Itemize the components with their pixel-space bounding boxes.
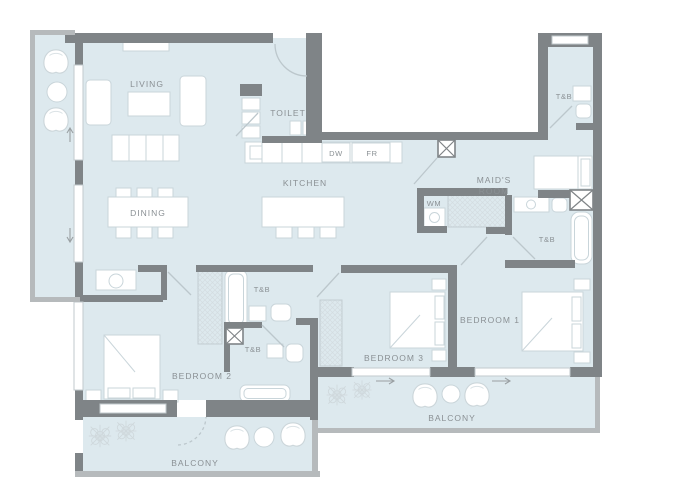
label-dishwasher: DW xyxy=(329,149,343,158)
room-label-kitchen: KITCHEN xyxy=(283,178,327,188)
chair-icon xyxy=(225,426,249,449)
room-label-tb-lower: T&B xyxy=(245,345,261,354)
chair-icon xyxy=(281,423,305,446)
chair-icon xyxy=(44,50,68,73)
plant-icon xyxy=(352,380,371,399)
room-label-maids-1: MAID'S xyxy=(477,175,512,185)
bathtub xyxy=(240,385,290,402)
nightstand xyxy=(432,279,446,290)
sink xyxy=(249,306,266,321)
armchair-left xyxy=(86,80,111,125)
room-label-bedroom1: BEDROOM 1 xyxy=(460,315,520,325)
coffee-table xyxy=(128,92,170,116)
chair xyxy=(109,274,123,288)
room-label-toilet: TOILET xyxy=(270,108,306,118)
kitchen-counter xyxy=(245,142,402,163)
bedroom2-wardrobe xyxy=(198,270,222,344)
plant-icon xyxy=(116,421,137,442)
water-closet xyxy=(286,344,303,362)
left-balcony-furniture xyxy=(44,50,68,131)
tv-console xyxy=(123,42,169,51)
room-label-dining: DINING xyxy=(130,208,166,218)
label-fridge: FR xyxy=(366,149,377,158)
nightstand xyxy=(574,279,590,290)
room-label-balcony-right: BALCONY xyxy=(428,413,476,423)
water-closet xyxy=(576,104,591,118)
corridor-cabinet xyxy=(448,193,506,227)
floorplan-drawing: LIVING TOILET DINING KITCHEN DW FR MAID'… xyxy=(0,0,695,502)
room-label-tb-master: T&B xyxy=(539,235,555,244)
room-label-tb-upper: T&B xyxy=(254,285,270,294)
room-label-bedroom2: BEDROOM 2 xyxy=(172,371,232,381)
water-closet xyxy=(271,304,291,321)
room-label-maids-2: ROOM xyxy=(479,186,509,196)
room-label-living: LIVING xyxy=(130,79,164,89)
maids-bed xyxy=(534,156,592,189)
washing-machine xyxy=(424,208,445,227)
chair-icon xyxy=(413,384,437,407)
room-label-tb-maid: T&B xyxy=(556,92,572,101)
room-label-balcony-left: BALCONY xyxy=(171,458,219,468)
kitchen-sink xyxy=(250,146,262,159)
plant-icon xyxy=(89,425,111,447)
label-washing-machine: WM xyxy=(427,199,442,208)
sink xyxy=(573,86,591,101)
vanity xyxy=(514,197,549,212)
plant-icon xyxy=(327,385,348,406)
nightstand xyxy=(432,350,446,361)
nightstand xyxy=(574,352,590,363)
bedroom3-wardrobe xyxy=(320,300,342,366)
shaft-column xyxy=(438,140,455,157)
round-table xyxy=(442,385,460,403)
round-table xyxy=(254,427,274,447)
sink xyxy=(267,344,283,358)
water-closet xyxy=(552,198,567,212)
shaft-column xyxy=(226,328,243,344)
floorplan-canvas: LIVING TOILET DINING KITCHEN DW FR MAID'… xyxy=(0,0,695,502)
shaft-column xyxy=(570,190,593,210)
chair-icon xyxy=(44,108,68,131)
left-balcony-floor xyxy=(35,35,75,297)
chair-icon xyxy=(465,383,489,406)
room-label-bedroom3: BEDROOM 3 xyxy=(364,353,424,363)
bedroom1-furniture xyxy=(522,279,590,363)
armchair-right xyxy=(180,76,206,126)
round-table xyxy=(47,82,67,102)
